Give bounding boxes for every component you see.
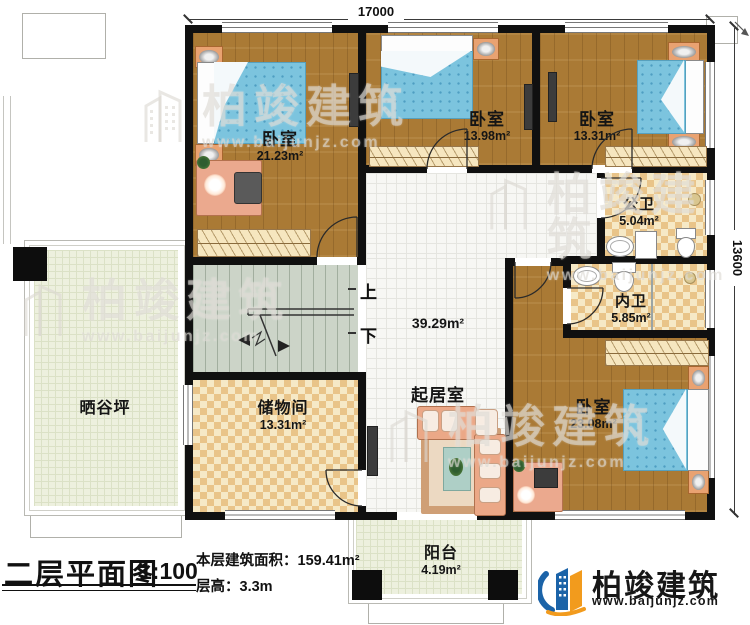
window <box>565 22 668 33</box>
side-table-icon <box>475 409 498 436</box>
tv-icon <box>534 468 558 488</box>
wall <box>358 506 366 512</box>
tv-icon <box>349 73 359 127</box>
wardrobe-icon <box>605 146 707 167</box>
lamp-icon <box>517 486 535 504</box>
drying-yard-floor <box>34 250 178 506</box>
door-opening <box>317 257 357 265</box>
sofa-cushion <box>479 439 501 455</box>
floor-drain-icon <box>688 193 701 206</box>
bed-icon <box>686 389 709 471</box>
shower-drain-icon <box>684 272 696 284</box>
door-opening <box>515 258 551 266</box>
room-name: 内卫 <box>593 294 669 311</box>
floorplan-canvas: 上 下 卧室 21.23m² 卧室 13.98m² 卧室 13.31m² 公卫 … <box>0 0 750 625</box>
edge-outline <box>3 96 11 244</box>
nightstand-icon <box>668 42 700 62</box>
room-label-balcony: 阳台 4.19m² <box>400 545 482 577</box>
room-label-bedroom-topright: 卧室 13.31m² <box>542 110 652 143</box>
column <box>488 570 518 600</box>
wall <box>193 257 317 265</box>
window <box>705 62 715 148</box>
nightstand-icon <box>688 366 709 390</box>
room-name: 卧室 <box>542 110 652 129</box>
window <box>388 22 498 33</box>
room-label-bedroom-topmid: 卧室 13.98m² <box>432 110 542 143</box>
brand-logo-icon <box>538 560 590 616</box>
room-area: 39.29m² <box>396 316 480 332</box>
room-area: 5.04m² <box>600 214 678 228</box>
room-name: 公卫 <box>600 197 678 214</box>
column <box>352 570 382 600</box>
room-area: 13.98m² <box>432 129 542 143</box>
room-area: 5.85m² <box>593 311 669 325</box>
column <box>13 247 47 281</box>
tv-icon <box>367 426 378 476</box>
wardrobe-icon <box>605 340 709 366</box>
room-name: 储物间 <box>235 400 331 418</box>
balcony-steps-outline <box>368 602 504 624</box>
room-area: 13.31m² <box>542 129 652 143</box>
room-name: 晒谷坪 <box>66 400 144 418</box>
wall <box>358 25 366 262</box>
brand-website: www.baijunjz.com <box>592 594 719 608</box>
wardrobe-icon <box>197 229 311 257</box>
room-label-bedroom-topleft: 卧室 21.23m² <box>225 130 335 163</box>
hallway-floor <box>366 173 597 258</box>
floor-area-text: 本层建筑面积：159.41m² <box>196 549 360 570</box>
sofa-cushion <box>441 410 458 432</box>
room-name: 起居室 <box>388 386 488 405</box>
watermark-logo-icon <box>138 84 192 146</box>
door-opening <box>563 288 571 324</box>
title-underline <box>2 584 196 586</box>
window <box>705 180 715 235</box>
room-area: 21.23m² <box>225 149 335 163</box>
wall <box>185 25 193 520</box>
lamp-icon <box>204 174 226 196</box>
room-label-bedroom-bottomright: 卧室 23.08m² <box>546 398 641 431</box>
floor-height-text: 层高：3.3m <box>196 575 273 596</box>
window <box>225 510 335 520</box>
title-underline <box>2 590 196 591</box>
window <box>222 22 332 33</box>
nightstand-icon <box>688 470 709 494</box>
wall <box>193 372 366 380</box>
window <box>555 510 685 520</box>
plant-icon <box>513 460 525 472</box>
stairs-tick <box>348 332 356 334</box>
roof-outline <box>22 13 106 59</box>
nightstand-icon <box>473 38 499 60</box>
wall <box>532 25 540 173</box>
window <box>183 385 193 445</box>
sofa-cushion <box>479 487 501 503</box>
sink-icon <box>606 236 634 257</box>
steps-outline <box>30 514 182 538</box>
sofa-cushion <box>422 410 439 432</box>
window <box>705 270 715 328</box>
door-opening <box>358 470 366 506</box>
room-label-public-bath: 公卫 5.04m² <box>600 197 678 228</box>
wall <box>551 258 571 266</box>
room-area-living: 39.29m² <box>396 316 480 332</box>
room-name: 卧室 <box>225 130 335 149</box>
wall <box>358 372 366 470</box>
room-label-inner-bath: 内卫 5.85m² <box>593 294 669 325</box>
bed-icon <box>684 60 704 134</box>
wall <box>467 165 592 173</box>
dimension-right-value: 13600 <box>729 230 745 286</box>
sofa-cushion <box>479 463 501 479</box>
room-name: 阳台 <box>400 545 482 563</box>
stairs-up-label: 上 <box>360 278 377 303</box>
room-area: 4.19m² <box>400 563 482 577</box>
shower-tray-icon <box>635 231 657 259</box>
room-name: 卧室 <box>546 398 641 417</box>
plant-icon <box>197 156 210 169</box>
room-label-drying-yard: 晒谷坪 <box>66 400 144 418</box>
plan-title: 二层平面图 <box>4 551 159 593</box>
room-label-living: 起居室 <box>388 386 488 405</box>
dimension-top-value: 17000 <box>348 4 404 20</box>
room-name: 卧室 <box>432 110 542 129</box>
chair-icon <box>234 172 262 204</box>
drainage-arrow-icon <box>741 28 749 36</box>
wardrobe-icon <box>369 146 479 167</box>
plant-icon <box>449 458 463 476</box>
room-area: 23.08m² <box>546 417 641 431</box>
sink-icon <box>573 266 601 286</box>
wall <box>505 258 513 512</box>
wall <box>563 330 715 338</box>
plan-scale: 1:100 <box>139 558 198 585</box>
room-area: 13.31m² <box>235 418 331 432</box>
stairs-tick <box>348 288 356 290</box>
stairs-down-label: 下 <box>360 322 377 347</box>
room-label-storage: 储物间 13.31m² <box>235 400 331 432</box>
dimension-line-top <box>188 19 710 20</box>
staircase <box>193 262 358 372</box>
wall <box>357 257 366 265</box>
